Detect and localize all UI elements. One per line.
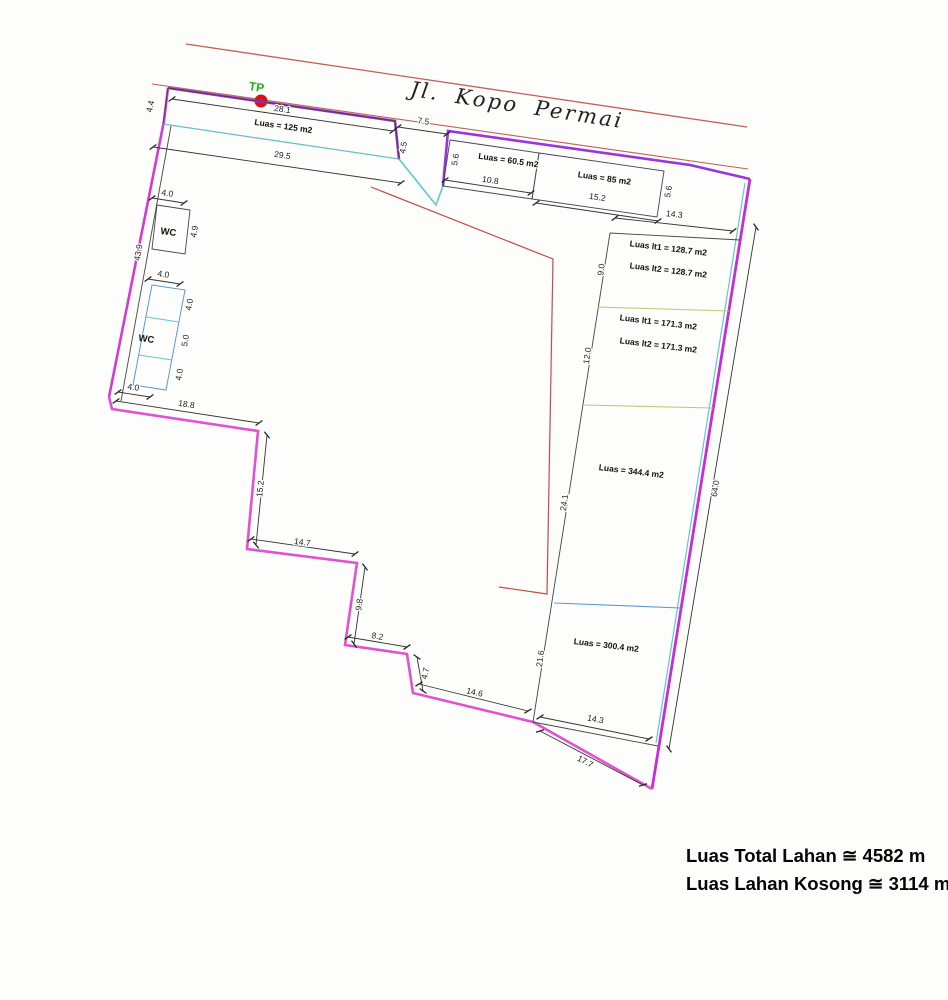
area-label-blockD: Luas = 300.4 m2 [573,636,639,654]
dim-line-7-5 [398,127,447,134]
dim-14-3-bottom: 14.3 [586,713,604,726]
dim-21-6: 21.6 [534,649,546,667]
summary-vacant-land: Luas Lahan Kosong ≅ 3114 m [686,873,948,894]
dim-5-6-left: 5.6 [449,153,461,167]
dim-line-14-3-top [615,218,733,231]
dim-4-9: 4.9 [188,225,200,239]
dim-14-6: 14.6 [465,685,484,699]
boundary-left-wall [109,88,168,397]
site-plan-page: Jl. Kopo Permai TP 28.1 Luas = 125 m2 29… [0,0,948,1000]
dim-5-0: 5.0 [179,334,191,348]
strip3-outline [532,153,664,217]
plot-boundary [109,88,750,789]
dim-4-0-wc2-right1: 4.0 [183,298,195,312]
area-label-blockC: Luas = 344.4 m2 [598,462,664,480]
strip2-outline [443,140,539,199]
dim-7-5: 7.5 [417,115,430,127]
site-plan-drawing: Jl. Kopo Permai TP 28.1 Luas = 125 m2 29… [0,0,948,1000]
area-label-strip3: Luas = 85 m2 [577,169,632,187]
dim-14-7: 14.7 [294,536,312,548]
dim-line-4-0e [118,392,150,397]
dim-5-6-right: 5.6 [662,185,674,199]
dim-15-2-top: 15.2 [589,191,607,203]
area-label-blockA2: Luas lt2 = 128.7 m2 [629,260,708,279]
wc1-label: WC [160,226,177,239]
dim-64-0: 64.0 [709,479,722,497]
dim-8-2: 8.2 [371,630,385,642]
dim-9-0: 9.0 [595,263,607,276]
dim-4-4: 4.4 [144,99,156,113]
wc2-separator-2 [139,355,172,360]
dim-28-1: 28.1 [274,103,292,115]
left-inner-wall [121,126,171,401]
boundary-cyan-connector [399,159,443,205]
summary-total-land: Luas Total Lahan ≅ 4582 m [686,845,925,866]
dim-4-5: 4.5 [397,141,409,155]
dim-24-1: 24.1 [558,493,570,511]
column-separator-3 [554,603,681,608]
wc2-label: WC [138,333,155,346]
dim-43-9: 43.9 [132,243,145,261]
boundary-bottom-staircase [109,397,652,789]
column-separator-1 [598,307,729,311]
dim-4-0-wc1-top: 4.0 [161,187,175,199]
area-label-blockB1: Luas lt1 = 171.3 m2 [619,312,698,331]
dim-4-0-bottom: 4.0 [127,381,141,393]
column-separator-2 [584,405,713,408]
area-label-blockB2: Luas lt2 = 171.3 m2 [619,335,698,354]
dim-29-5: 29.5 [274,149,292,161]
dim-4-0-wc2-top: 4.0 [157,268,171,280]
dim-line-15-2a [536,203,658,221]
dim-4-7: 4.7 [419,666,431,680]
dim-10-8: 10.8 [482,174,500,186]
dim-18-8: 18.8 [178,398,196,411]
dim-14-3-top: 14.3 [666,208,684,220]
vacant-land-red-outline [371,187,553,594]
dim-line-4-0b [148,279,180,284]
dim-12-0: 12.0 [581,346,593,364]
area-label-strip1: Luas = 125 m2 [254,117,313,135]
area-label-blockA1: Luas lt1 = 128.7 m2 [629,238,708,257]
area-label-strip2: Luas = 60.5 m2 [478,151,540,170]
dim-9-8: 9.8 [353,598,365,611]
dim-4-0-wc2-right2: 4.0 [173,368,185,382]
wc2-separator-1 [146,317,179,322]
tp-label: TP [248,79,265,95]
dim-15-2-left: 15.2 [254,480,266,498]
